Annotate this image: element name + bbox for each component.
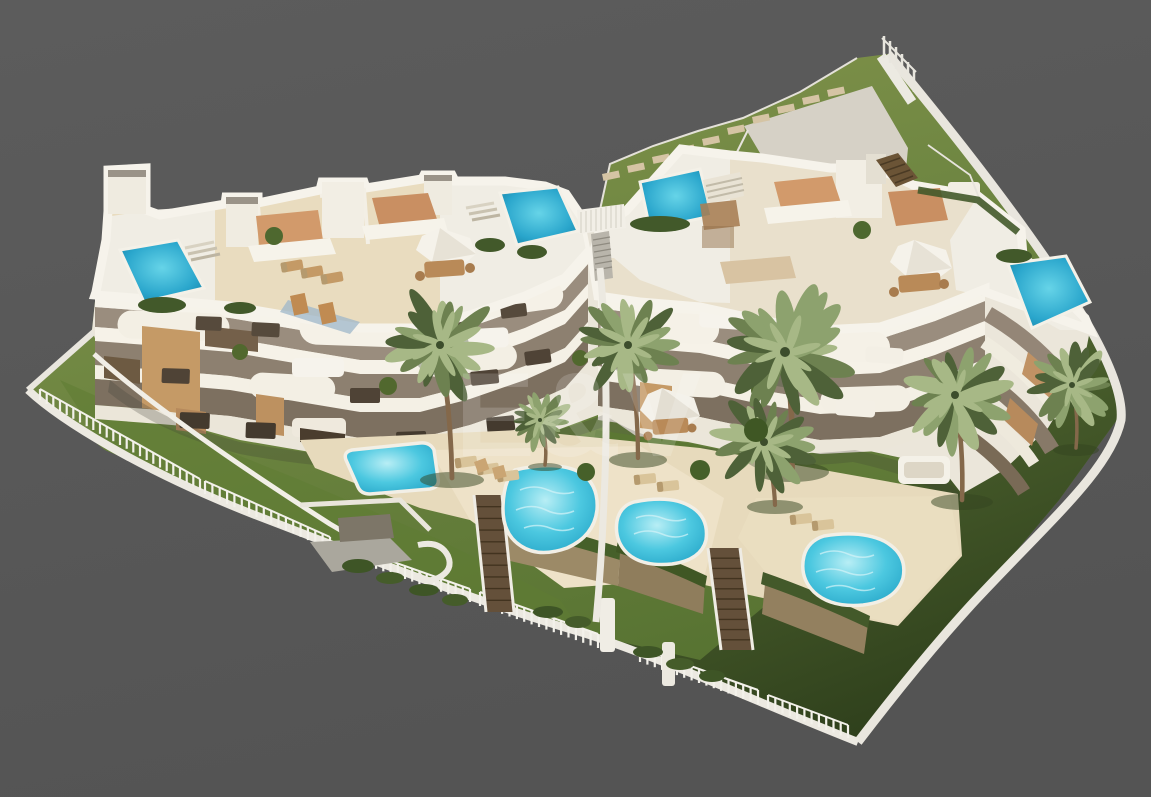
svg-text:E&V: E&V bbox=[455, 348, 702, 482]
